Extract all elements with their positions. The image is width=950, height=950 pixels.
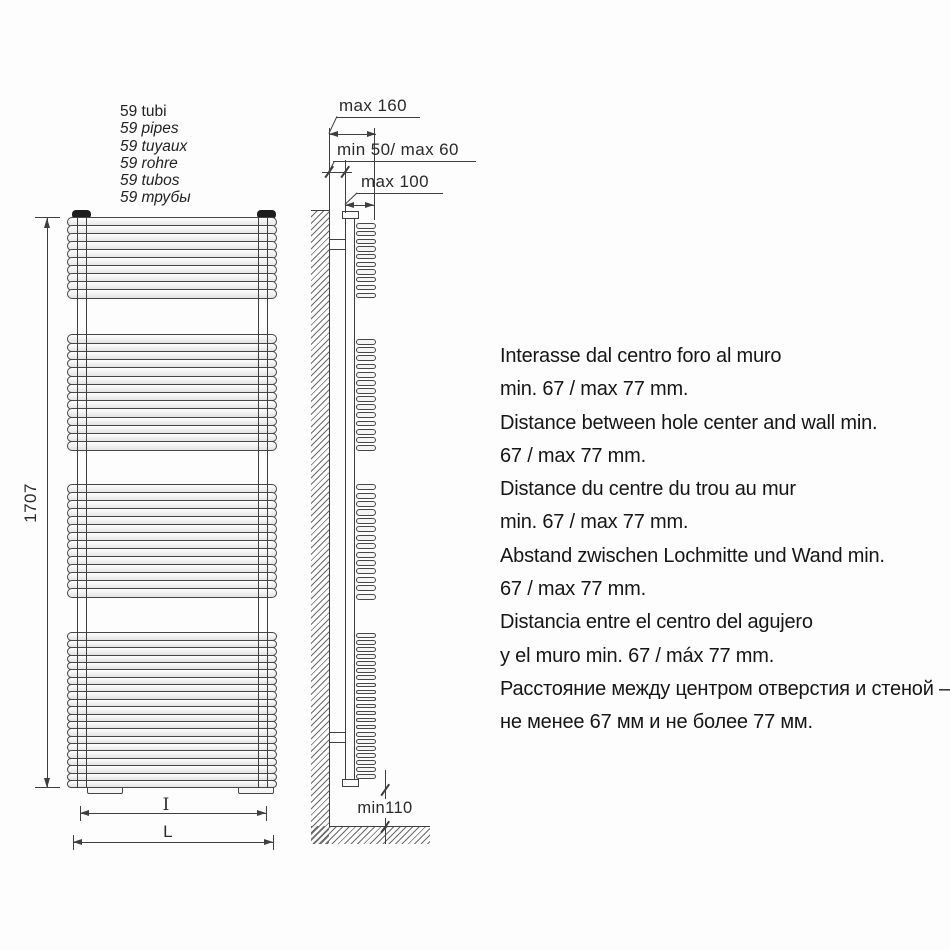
note-ru: Расстояние между центром отверстия и сте… xyxy=(500,673,950,740)
stub xyxy=(356,285,376,290)
note-en: Distance between hole center and wall mi… xyxy=(500,407,950,474)
side-stub-group-4 xyxy=(356,632,376,780)
stub xyxy=(356,568,376,574)
stub xyxy=(356,725,376,730)
stub xyxy=(356,484,376,490)
stub xyxy=(356,746,376,751)
stub xyxy=(356,518,376,524)
stub xyxy=(356,739,376,744)
arrow-right-icon xyxy=(365,202,374,208)
side-stub-group-3 xyxy=(356,483,376,601)
leader-underline xyxy=(356,193,443,194)
stub xyxy=(356,445,376,451)
stub xyxy=(356,767,376,772)
note-es: Distancia entre el centro del agujero y … xyxy=(500,606,950,673)
stub xyxy=(356,654,376,659)
stub xyxy=(356,661,376,666)
front-rail-right-inner xyxy=(258,218,259,788)
stub xyxy=(356,355,376,361)
stub xyxy=(356,239,376,244)
dim-line-L xyxy=(73,842,273,843)
stub xyxy=(356,675,376,680)
front-tube-group-3 xyxy=(67,485,277,597)
stub xyxy=(356,404,376,410)
wall-section xyxy=(311,210,329,844)
leader-underline xyxy=(333,161,476,162)
tube-count-de: 59 rohre xyxy=(120,155,191,172)
stub xyxy=(356,437,376,443)
side-stub-group-2 xyxy=(356,338,376,452)
stub xyxy=(356,277,376,282)
stub xyxy=(356,647,376,652)
front-tube-group-4 xyxy=(67,633,277,788)
stub xyxy=(356,543,376,549)
tube xyxy=(67,780,277,789)
stub xyxy=(356,560,376,566)
dim-label-max100: max 100 xyxy=(361,172,429,192)
arrow-right-icon xyxy=(264,839,273,845)
dim-label-max160: max 160 xyxy=(339,96,407,116)
notes-block: Interasse dal centro foro al muro min. 6… xyxy=(500,340,950,740)
stub xyxy=(356,718,376,723)
note-line: 67 / max 77 mm. xyxy=(500,573,950,606)
stub xyxy=(356,697,376,702)
stub xyxy=(356,732,376,737)
stub xyxy=(356,347,376,353)
stub xyxy=(356,640,376,645)
stub xyxy=(356,429,376,435)
stub xyxy=(356,231,376,236)
wall-bracket-bottom xyxy=(330,732,345,743)
front-tube-group-2 xyxy=(67,335,277,450)
note-line: не менее 67 мм и не более 77 мм. xyxy=(500,706,950,739)
note-line: min. 67 / max 77 mm. xyxy=(500,373,950,406)
note-line: Расстояние между центром отверстия и сте… xyxy=(500,673,950,706)
note-it: Interasse dal centro foro al muro min. 6… xyxy=(500,340,950,407)
stub xyxy=(356,246,376,251)
side-stub-group-1 xyxy=(356,222,376,299)
note-line: Distance between hole center and wall mi… xyxy=(500,407,950,440)
stub xyxy=(356,577,376,583)
stub xyxy=(356,380,376,386)
stub xyxy=(356,388,376,394)
stub xyxy=(356,223,376,228)
stub xyxy=(356,262,376,267)
arrow-left-icon xyxy=(345,202,354,208)
stub xyxy=(356,633,376,638)
stub xyxy=(356,683,376,688)
stub xyxy=(356,711,376,716)
note-line: Distancia entre el centro del agujero xyxy=(500,606,950,639)
front-rail-left-outer xyxy=(77,218,78,788)
stub xyxy=(356,774,376,779)
dim-label-min110: min110 xyxy=(351,799,419,818)
stub xyxy=(356,293,376,298)
leader-underline xyxy=(336,117,420,118)
stub xyxy=(356,493,376,499)
dim-label-L: L xyxy=(158,822,178,842)
arrow-left-icon xyxy=(73,839,82,845)
dim-label-I: I xyxy=(156,795,176,815)
stub xyxy=(356,704,376,709)
stub xyxy=(356,760,376,765)
arrow-left-icon xyxy=(329,131,338,137)
stub xyxy=(356,269,376,274)
floor-section xyxy=(311,826,430,844)
front-rail-left-inner xyxy=(86,218,87,788)
stub xyxy=(356,594,376,600)
front-rail-right-outer xyxy=(267,218,268,788)
wall-bracket-top xyxy=(330,239,345,250)
note-de: Abstand zwischen Lochmitte und Wand min.… xyxy=(500,540,950,607)
stub xyxy=(356,526,376,532)
tube-count-es: 59 tubos xyxy=(120,172,191,189)
arrow-up-icon xyxy=(44,218,50,228)
arrow-left-icon xyxy=(80,810,89,816)
tube-count-ru: 59 трубы xyxy=(120,189,191,206)
stub xyxy=(356,412,376,418)
stub xyxy=(356,372,376,378)
tube xyxy=(67,289,277,298)
stub xyxy=(356,690,376,695)
stub xyxy=(356,668,376,673)
tube-count-list: 59 tubi 59 pipes 59 tuyaux 59 rohre 59 t… xyxy=(120,103,191,207)
radiator-spec-diagram: 59 tubi 59 pipes 59 tuyaux 59 rohre 59 t… xyxy=(0,0,950,950)
note-line: 67 / max 77 mm. xyxy=(500,440,950,473)
tube-count-fr: 59 tuyaux xyxy=(120,138,191,155)
front-tube-group-1 xyxy=(67,218,277,298)
note-line: Distance du centre du trou au mur xyxy=(500,473,950,506)
stub xyxy=(356,585,376,591)
stub xyxy=(356,509,376,515)
dim-line-I xyxy=(80,813,266,814)
stub xyxy=(356,501,376,507)
note-line: y el muro min. 67 / máx 77 mm. xyxy=(500,640,950,673)
floor-line xyxy=(329,826,430,827)
stub xyxy=(356,254,376,259)
tube-count-it: 59 tubi xyxy=(120,103,191,120)
stub xyxy=(356,421,376,427)
tube-count-en: 59 pipes xyxy=(120,120,191,137)
stub xyxy=(356,552,376,558)
note-line: min. 67 / max 77 mm. xyxy=(500,506,950,539)
stub xyxy=(356,396,376,402)
stub xyxy=(356,364,376,370)
wall-top-line xyxy=(311,210,329,211)
collector-pipe xyxy=(345,213,355,783)
stub xyxy=(356,753,376,758)
note-line: Interasse dal centro foro al muro xyxy=(500,340,950,373)
stub xyxy=(356,535,376,541)
tube xyxy=(67,588,277,597)
dim-label-min50max60: min 50/ max 60 xyxy=(337,140,459,160)
stub xyxy=(356,339,376,345)
arrow-right-icon xyxy=(257,810,266,816)
dim-line-height xyxy=(47,218,48,788)
note-fr: Distance du centre du trou au mur min. 6… xyxy=(500,473,950,540)
tube xyxy=(67,441,277,450)
note-line: Abstand zwischen Lochmitte und Wand min. xyxy=(500,540,950,573)
pipe-cap-bottom xyxy=(342,779,359,787)
dim-label-height: 1707 xyxy=(21,458,41,548)
arrow-down-icon xyxy=(44,778,50,788)
